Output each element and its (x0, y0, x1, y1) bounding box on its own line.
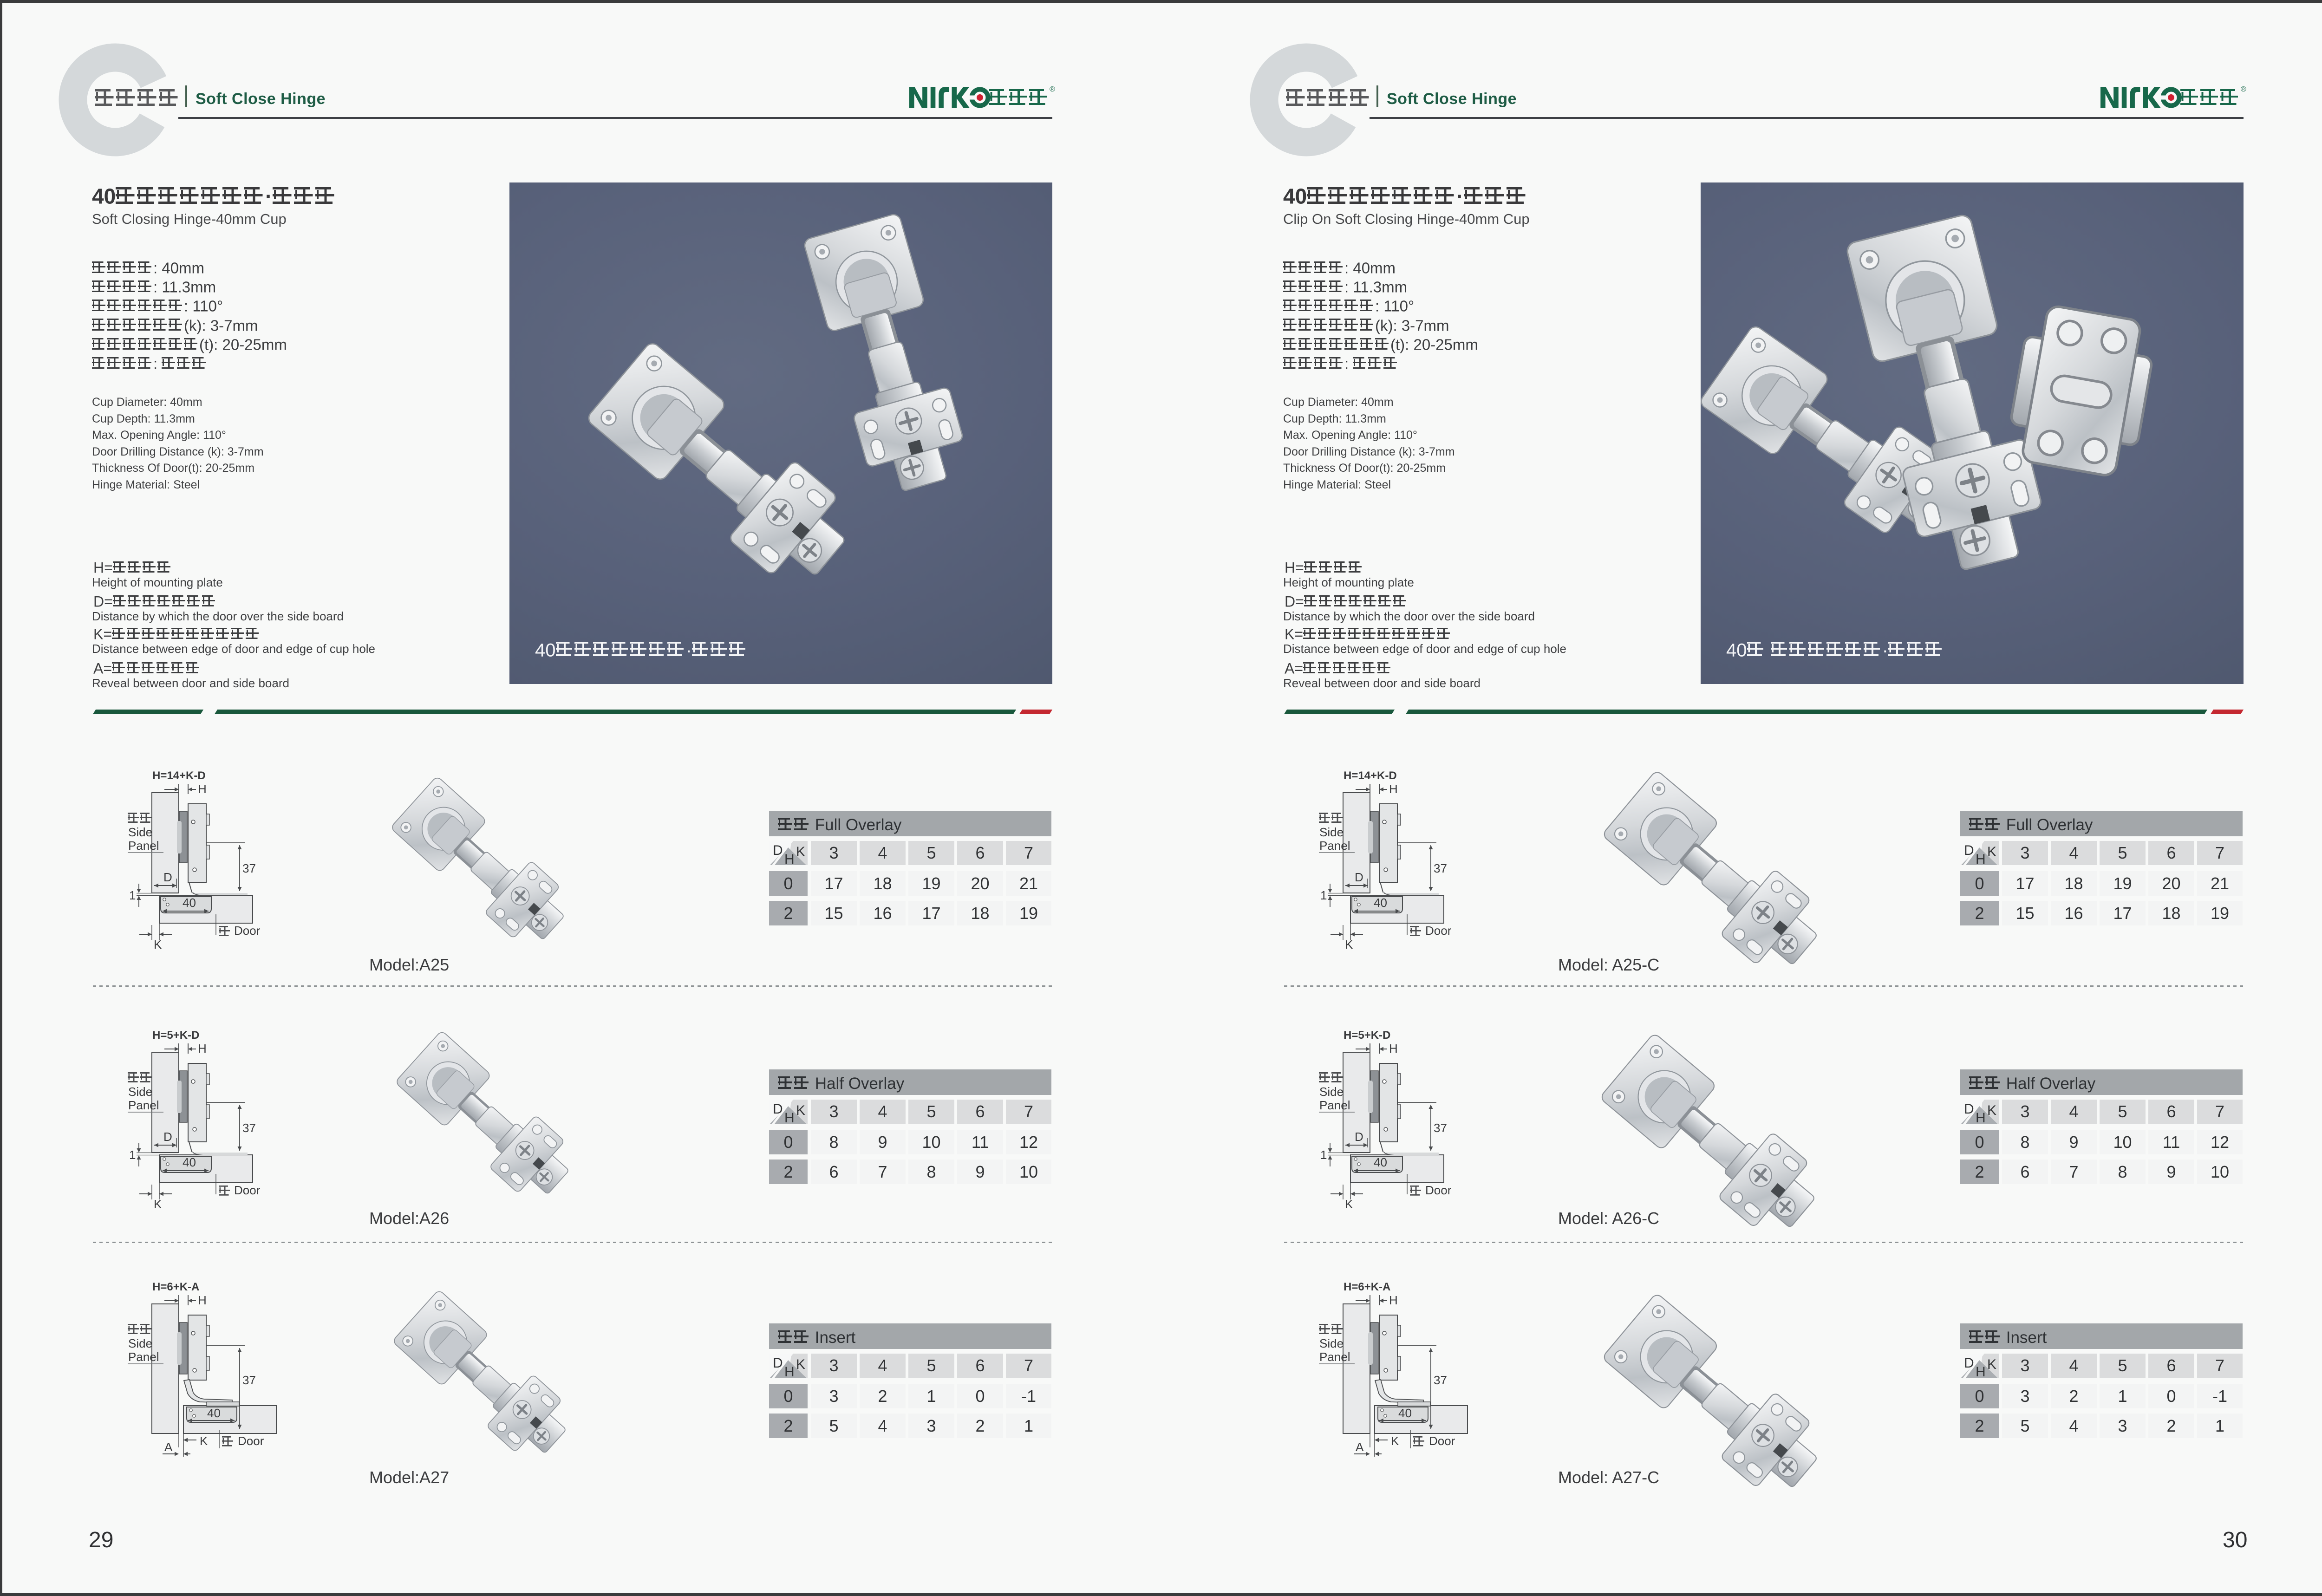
svg-text:H=6+K-A: H=6+K-A (152, 1281, 199, 1293)
svg-text:40: 40 (1398, 1406, 1412, 1420)
svg-text:D: D (1355, 870, 1363, 884)
svg-text:Panel: Panel (1319, 1098, 1350, 1112)
svg-text:H=14+K-D: H=14+K-D (1344, 769, 1397, 782)
svg-text:D: D (1964, 843, 1974, 858)
svg-text:H: H (784, 1364, 795, 1378)
svg-text:Panel: Panel (1319, 839, 1350, 853)
svg-text:K: K (1987, 844, 1996, 860)
svg-text:H: H (198, 1042, 207, 1055)
svg-text:H=5+K-D: H=5+K-D (1344, 1029, 1390, 1042)
svg-text:H: H (1389, 1293, 1398, 1307)
svg-text:1: 1 (129, 1148, 136, 1162)
svg-text:Door: Door (238, 1434, 264, 1448)
svg-text:H: H (1976, 1364, 1986, 1378)
svg-text:H: H (784, 1110, 795, 1124)
svg-text:D: D (773, 1101, 783, 1117)
svg-text:K: K (154, 1197, 162, 1211)
svg-text:Panel: Panel (128, 1098, 159, 1112)
svg-text:K: K (1345, 938, 1353, 951)
svg-text:Door: Door (1425, 924, 1452, 938)
svg-text:40: 40 (183, 1155, 196, 1169)
svg-text:37: 37 (242, 861, 256, 875)
svg-text:40: 40 (1374, 896, 1387, 910)
svg-text:D: D (163, 870, 172, 884)
svg-text:H: H (1976, 852, 1986, 865)
svg-text:1: 1 (1320, 1148, 1327, 1162)
svg-text:Panel: Panel (128, 839, 159, 853)
svg-text:K: K (200, 1434, 208, 1448)
svg-text:K: K (154, 938, 162, 951)
svg-text:Side: Side (1319, 825, 1344, 839)
svg-text:1: 1 (129, 888, 136, 902)
svg-text:K: K (1987, 1357, 1996, 1372)
svg-text:H: H (784, 852, 795, 865)
svg-text:40: 40 (1374, 1155, 1387, 1169)
svg-text:Door: Door (1429, 1434, 1455, 1448)
svg-text:D: D (1964, 1101, 1974, 1117)
svg-text:K: K (1345, 1197, 1353, 1211)
svg-text:H=14+K-D: H=14+K-D (152, 769, 206, 782)
svg-text:K: K (1391, 1434, 1399, 1448)
svg-text:K: K (796, 1103, 805, 1118)
svg-text:H: H (1389, 782, 1398, 796)
svg-text:Side: Side (1319, 1085, 1344, 1099)
svg-text:H=6+K-A: H=6+K-A (1344, 1281, 1390, 1293)
svg-text:H: H (198, 782, 207, 796)
svg-text:1: 1 (1320, 888, 1327, 902)
svg-text:Side: Side (128, 825, 152, 839)
svg-text:37: 37 (1434, 1373, 1447, 1387)
svg-text:K: K (1987, 1103, 1996, 1118)
svg-text:H: H (1389, 1042, 1398, 1055)
svg-text:K: K (796, 1357, 805, 1372)
svg-text:D: D (773, 1355, 783, 1371)
svg-text:A: A (164, 1440, 173, 1454)
svg-text:37: 37 (242, 1121, 256, 1135)
svg-text:D: D (1964, 1355, 1974, 1371)
svg-text:Side: Side (128, 1336, 152, 1350)
svg-text:H: H (198, 1293, 207, 1307)
svg-text:37: 37 (1434, 1121, 1447, 1135)
svg-text:37: 37 (242, 1373, 256, 1387)
svg-text:D: D (1355, 1130, 1363, 1144)
svg-text:Door: Door (1425, 1183, 1452, 1197)
svg-text:D: D (163, 1130, 172, 1144)
svg-text:D: D (773, 843, 783, 858)
svg-text:K: K (796, 844, 805, 860)
svg-text:40: 40 (183, 896, 196, 910)
svg-text:Panel: Panel (128, 1350, 159, 1364)
svg-text:Door: Door (234, 924, 261, 938)
svg-text:40: 40 (207, 1406, 221, 1420)
svg-text:Side: Side (1319, 1336, 1344, 1350)
svg-text:H: H (1976, 1110, 1986, 1124)
svg-text:Door: Door (234, 1183, 261, 1197)
svg-text:A: A (1356, 1440, 1364, 1454)
svg-text:H=5+K-D: H=5+K-D (152, 1029, 199, 1042)
svg-text:37: 37 (1434, 861, 1447, 875)
svg-text:Panel: Panel (1319, 1350, 1350, 1364)
svg-text:Side: Side (128, 1085, 152, 1099)
